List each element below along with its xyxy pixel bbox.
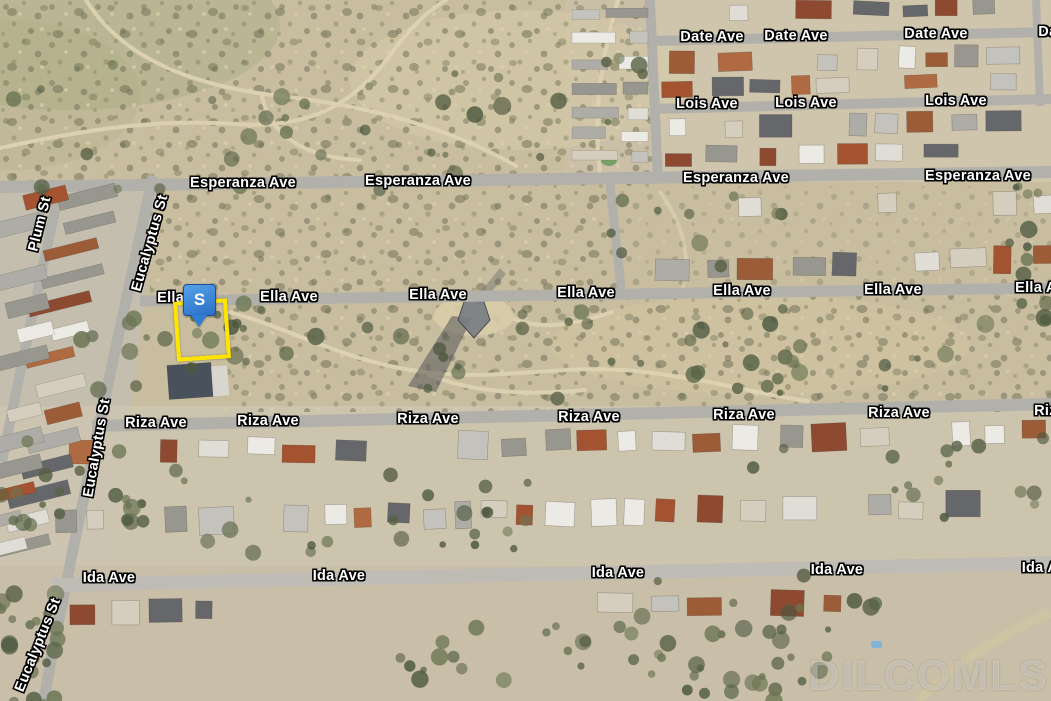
- listing-pin-marker[interactable]: S: [183, 284, 214, 327]
- pin-body: S: [183, 284, 216, 316]
- pin-label: S: [194, 290, 205, 310]
- pin-tip-icon: [191, 315, 207, 327]
- aerial-map[interactable]: Date AveDate AveDate AveDate AveLois Ave…: [0, 0, 1051, 701]
- satellite-imagery: [0, 0, 1051, 701]
